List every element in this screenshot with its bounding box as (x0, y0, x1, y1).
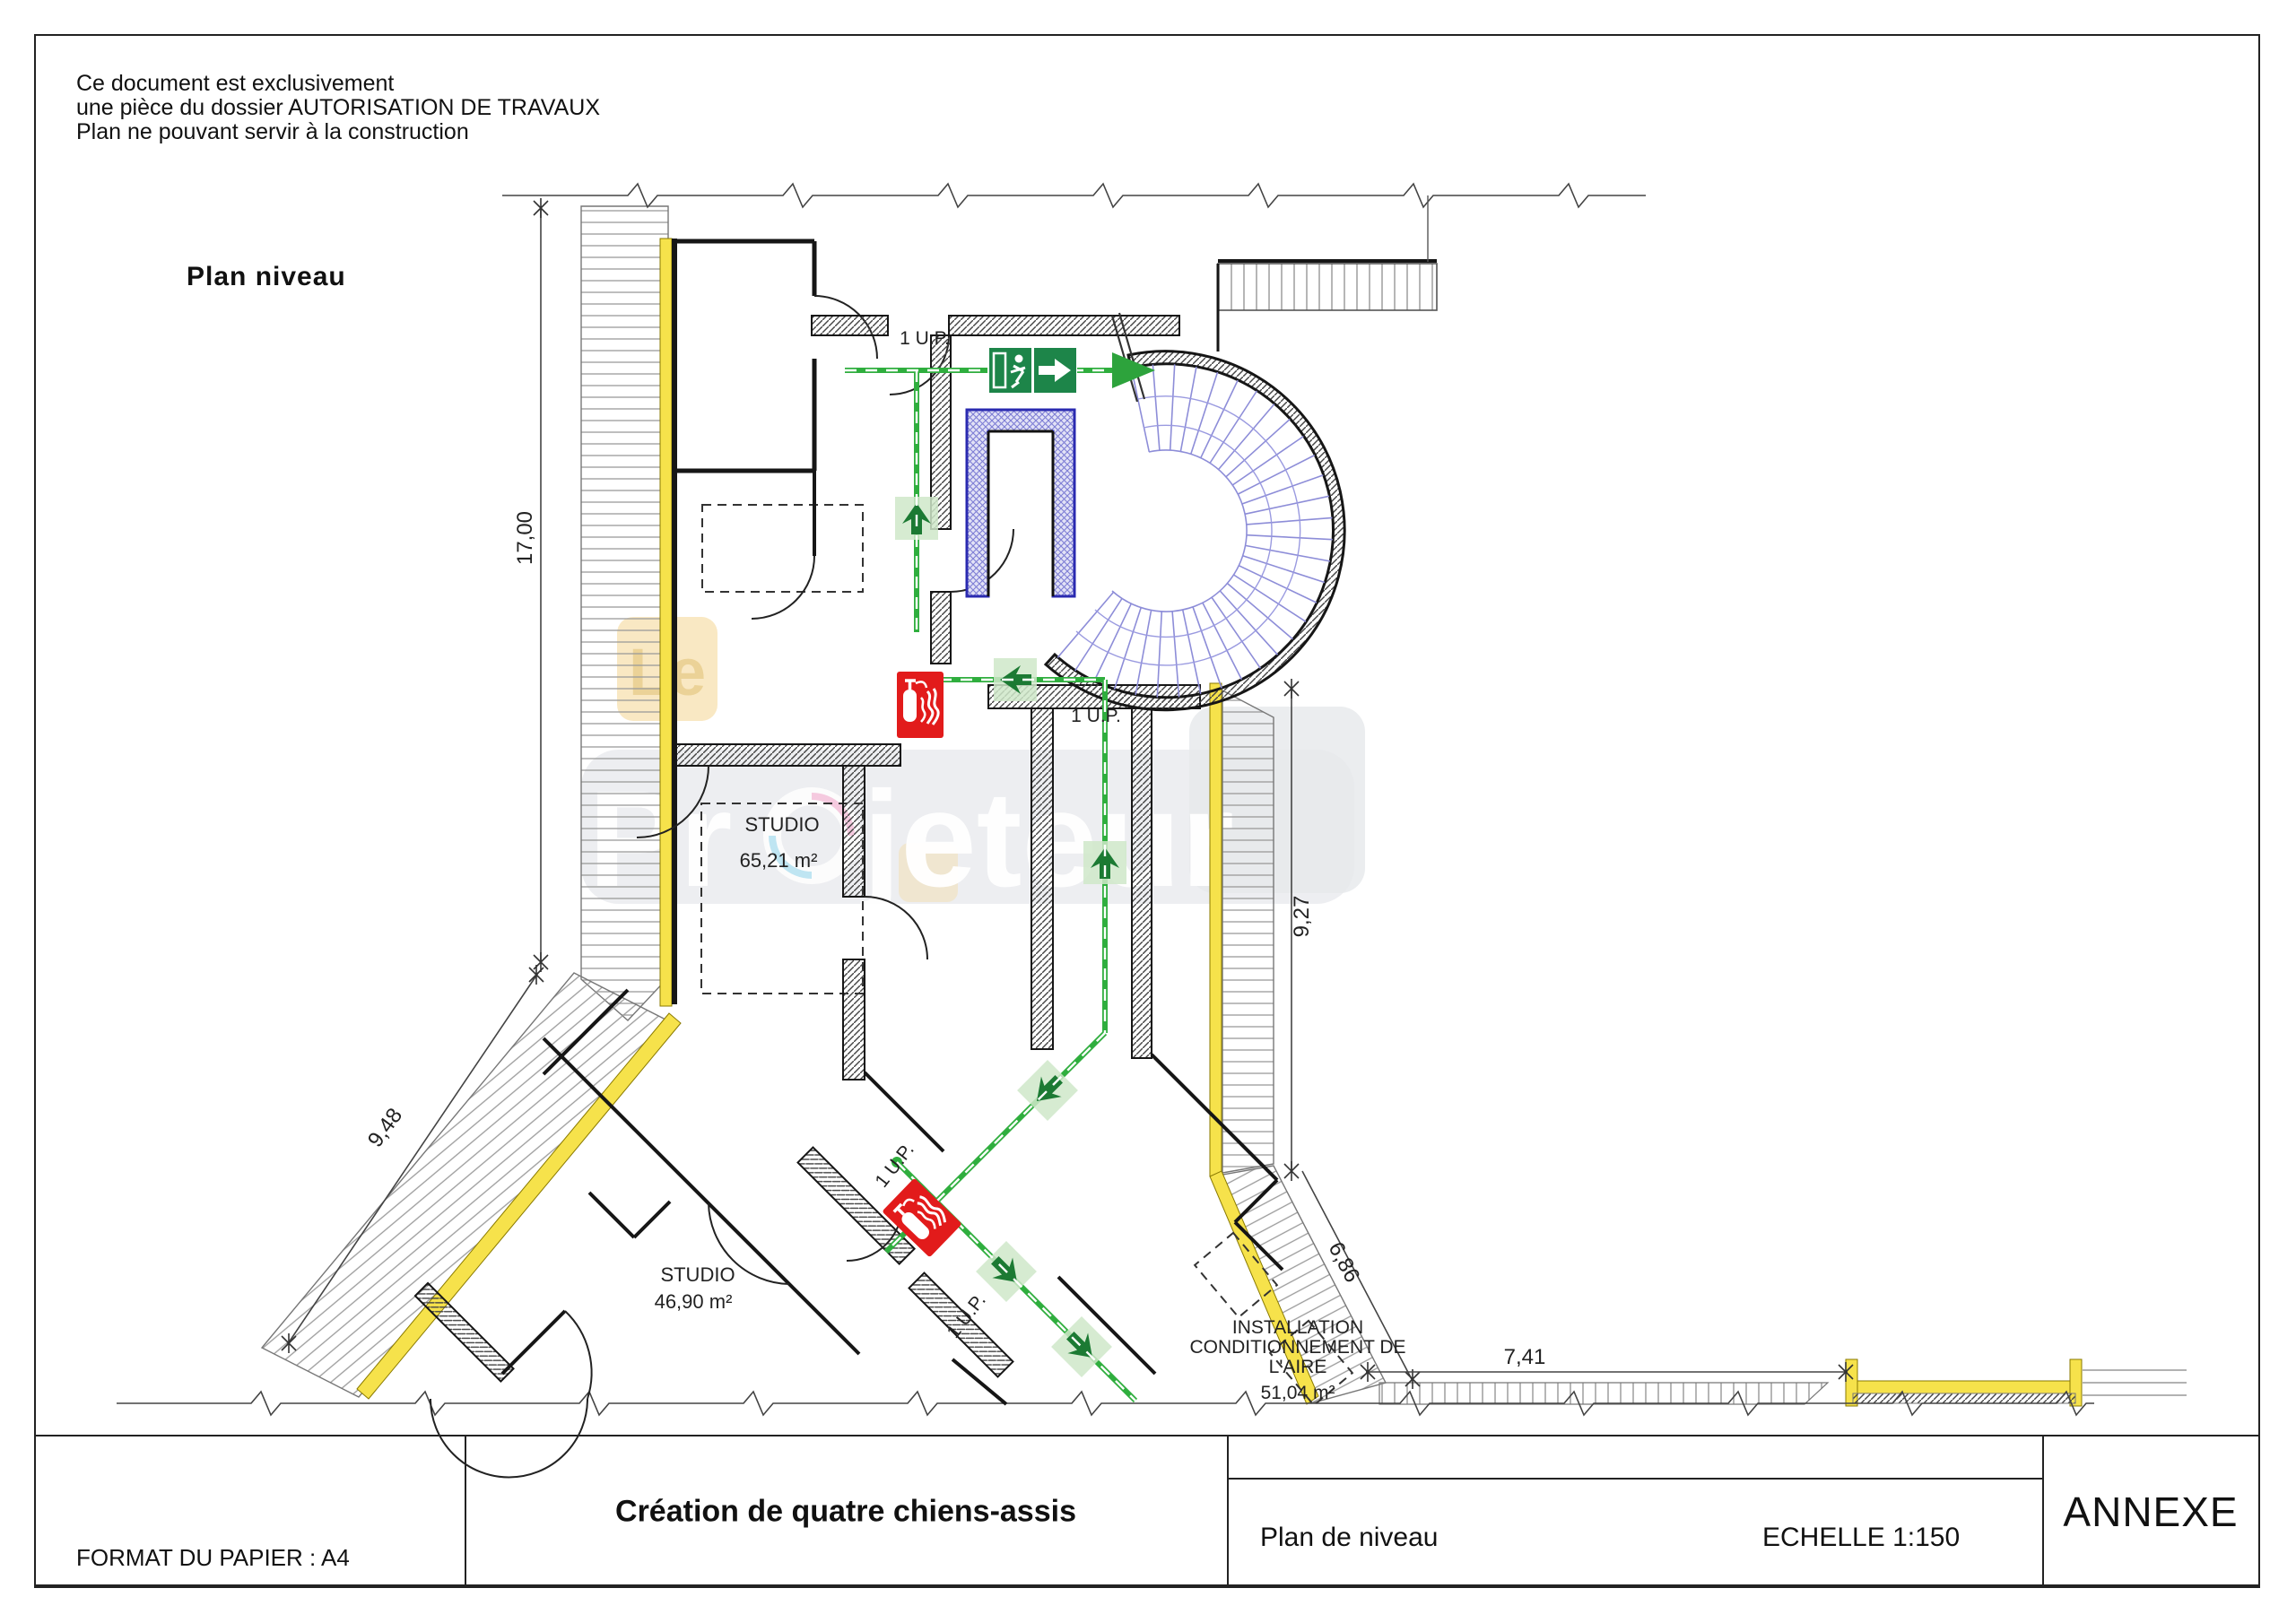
page-bottom-border (34, 1584, 2260, 1588)
disclaimer-line-1: Ce document est exclusivement (76, 72, 600, 96)
room-studio1-area: 65,21 m² (740, 849, 818, 872)
plan-level-label: Plan niveau (187, 262, 346, 292)
installation-line-2: CONDITIONNEMENT DE (1189, 1338, 1405, 1358)
installation-line-3: L'AIRE (1189, 1358, 1405, 1377)
scale-label: ECHELLE 1:150 (1762, 1523, 1960, 1553)
disclaimer-line-2: une pièce du dossier AUTORISATION DE TRA… (76, 96, 600, 120)
title-block-divider-2 (1227, 1435, 1229, 1588)
exit-unit-label-1: 1 U.P. (900, 328, 950, 350)
room-studio2-name: STUDIO (660, 1263, 735, 1287)
dim-bottom-width: 7,41 (1504, 1345, 1546, 1370)
title-block-subline (1227, 1478, 2044, 1480)
room-studio2-area: 46,90 m² (655, 1290, 733, 1314)
project-title: Création de quatre chiens-assis (615, 1495, 1076, 1530)
room-installation-area: 51,04 m² (1261, 1383, 1335, 1404)
exit-unit-label-2: 1 U.P. (1071, 706, 1121, 727)
room-studio1-name: STUDIO (744, 813, 819, 837)
page-border (34, 34, 2260, 1588)
dim-right-height: 9,27 (1290, 896, 1315, 938)
installation-line-1: INSTALLATION (1189, 1318, 1405, 1338)
title-block-divider-1 (465, 1435, 466, 1588)
drawing-sheet: Le Pr jeteur (0, 0, 2296, 1623)
annex-label: ANNEXE (2063, 1488, 2238, 1536)
title-block-top-line (34, 1435, 2260, 1436)
title-block-divider-3 (2042, 1435, 2044, 1588)
dim-left-height: 17,00 (513, 511, 538, 565)
room-installation-name: INSTALLATION CONDITIONNEMENT DE L'AIRE (1189, 1318, 1405, 1377)
drawing-name: Plan de niveau (1260, 1523, 1439, 1553)
disclaimer-note: Ce document est exclusivement une pièce … (76, 72, 600, 144)
disclaimer-line-3: Plan ne pouvant servir à la construction (76, 120, 600, 144)
paper-format-label: FORMAT DU PAPIER : A4 (76, 1544, 350, 1572)
